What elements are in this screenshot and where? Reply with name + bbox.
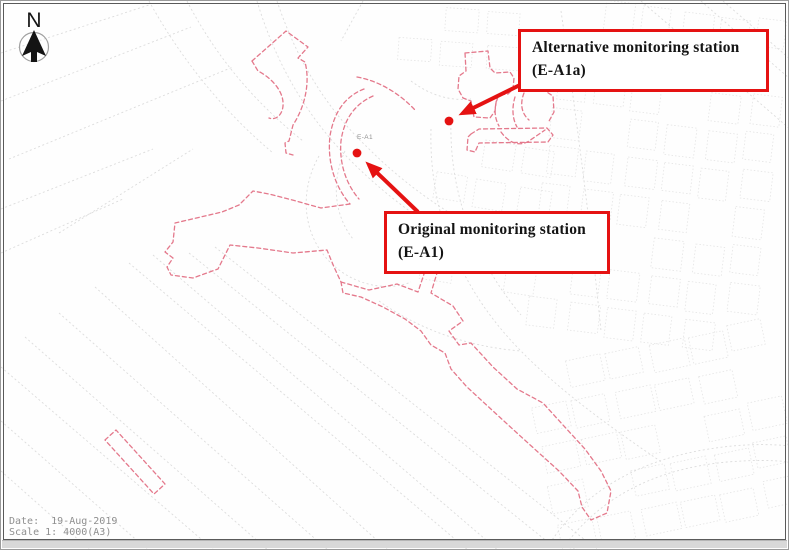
building-block	[624, 157, 657, 189]
road-line	[431, 129, 663, 463]
callout-alternative-line2: (E-A1a)	[532, 59, 755, 82]
building-block	[699, 370, 738, 404]
building-block	[481, 140, 516, 172]
callout-original-station: Original monitoring station (E-A1)	[384, 211, 610, 274]
road-line	[1, 149, 153, 209]
building-block	[688, 331, 728, 365]
building-block	[740, 169, 773, 201]
building-block	[445, 8, 480, 33]
building-block	[547, 479, 588, 514]
date-label: Date: 19-Aug-2019	[9, 516, 117, 527]
building-block	[680, 495, 720, 528]
boundary-right-lobe	[522, 89, 554, 123]
building-block	[439, 41, 473, 67]
building-block	[620, 425, 660, 460]
building-block	[581, 432, 622, 465]
scale-label: Scale 1: 4000(A3)	[9, 527, 111, 538]
building-block	[685, 281, 716, 314]
callout-alternative-station: Alternative monitoring station (E-A1a)	[518, 29, 769, 92]
building-block	[704, 409, 745, 442]
building-block	[730, 244, 761, 275]
building-block	[526, 296, 557, 328]
building-block	[641, 313, 672, 345]
building-block	[433, 172, 468, 203]
building-block	[727, 319, 766, 352]
building-block	[661, 163, 693, 194]
road-line	[1, 471, 91, 550]
building-block	[705, 131, 737, 163]
building-block	[583, 151, 614, 184]
building-block	[727, 282, 760, 314]
road-line	[336, 151, 353, 239]
works-boundary	[105, 31, 611, 520]
building-block	[607, 270, 640, 302]
building-block	[649, 338, 690, 373]
road-line	[561, 461, 789, 550]
building-block	[698, 168, 729, 201]
road-line	[153, 255, 499, 550]
road-line	[341, 1, 363, 41]
road-line	[545, 445, 789, 550]
road-line	[187, 1, 303, 141]
building-block	[732, 207, 764, 240]
boundary-channel	[495, 97, 517, 127]
callout-original-line1: Original monitoring station	[398, 218, 596, 241]
building-block	[670, 456, 711, 491]
building-block	[648, 276, 680, 307]
building-block	[398, 37, 432, 61]
building-block	[641, 502, 682, 536]
station-map-label: E-A1	[357, 134, 373, 141]
building-block	[763, 474, 789, 508]
building-block	[708, 93, 741, 124]
building-block	[605, 347, 644, 380]
building-block	[542, 440, 581, 473]
building-block	[747, 396, 787, 431]
north-label: N	[26, 9, 41, 32]
road-line	[59, 149, 193, 233]
boundary-crescent-outer	[329, 89, 364, 204]
map-figure: N Alternative monitoring station (E-A1a)…	[0, 0, 789, 550]
building-block	[627, 119, 658, 150]
building-block	[521, 147, 555, 177]
building-block	[692, 244, 724, 276]
building-block	[604, 308, 636, 341]
building-grid-bottomright	[522, 318, 789, 550]
boundary-cross	[458, 51, 514, 118]
north-arrow: N	[20, 9, 49, 62]
road-line	[1, 27, 191, 101]
road-line	[149, 1, 273, 153]
horizontal-scrollbar[interactable]	[2, 540, 787, 548]
road-line	[1, 199, 123, 253]
building-block	[603, 1, 635, 33]
building-block	[682, 319, 715, 350]
road-line	[129, 263, 469, 550]
building-block	[658, 200, 689, 232]
building-block	[743, 131, 774, 162]
boundary-small-rect	[105, 430, 165, 494]
road-line	[189, 253, 559, 550]
road-line	[9, 67, 233, 159]
road-line	[1, 5, 149, 53]
building-block	[617, 194, 649, 227]
boundary-bottom-bar	[467, 128, 553, 152]
callout-original-line2: (E-A1)	[398, 241, 596, 264]
building-block	[487, 12, 520, 36]
road-line	[379, 301, 521, 351]
building-block	[631, 464, 670, 497]
arrow-to-original-station	[369, 165, 418, 212]
road-line	[59, 313, 329, 550]
building-block	[486, 46, 522, 71]
road-line	[411, 81, 471, 99]
building-block	[753, 436, 789, 469]
building-block	[720, 488, 759, 522]
building-block	[472, 179, 506, 211]
building-block	[651, 238, 684, 271]
boundary-claw	[165, 191, 350, 282]
building-block	[664, 125, 697, 158]
boundary-arc	[357, 77, 415, 110]
building-block	[567, 302, 600, 333]
building-block	[714, 448, 754, 482]
road-line	[95, 287, 389, 550]
road-line	[215, 247, 599, 550]
building-block	[654, 378, 694, 411]
building-block	[532, 401, 572, 434]
building-grid-topcenter	[397, 4, 524, 70]
station-marker-original	[353, 149, 362, 158]
station-marker-alternative	[445, 117, 454, 126]
callout-alternative-line1: Alternative monitoring station	[532, 36, 755, 59]
boundary-crescent-inner	[341, 96, 373, 199]
building-block	[615, 385, 656, 419]
road-line	[277, 1, 501, 241]
building-block	[566, 354, 606, 388]
arrow-to-alternative-station	[463, 84, 522, 113]
